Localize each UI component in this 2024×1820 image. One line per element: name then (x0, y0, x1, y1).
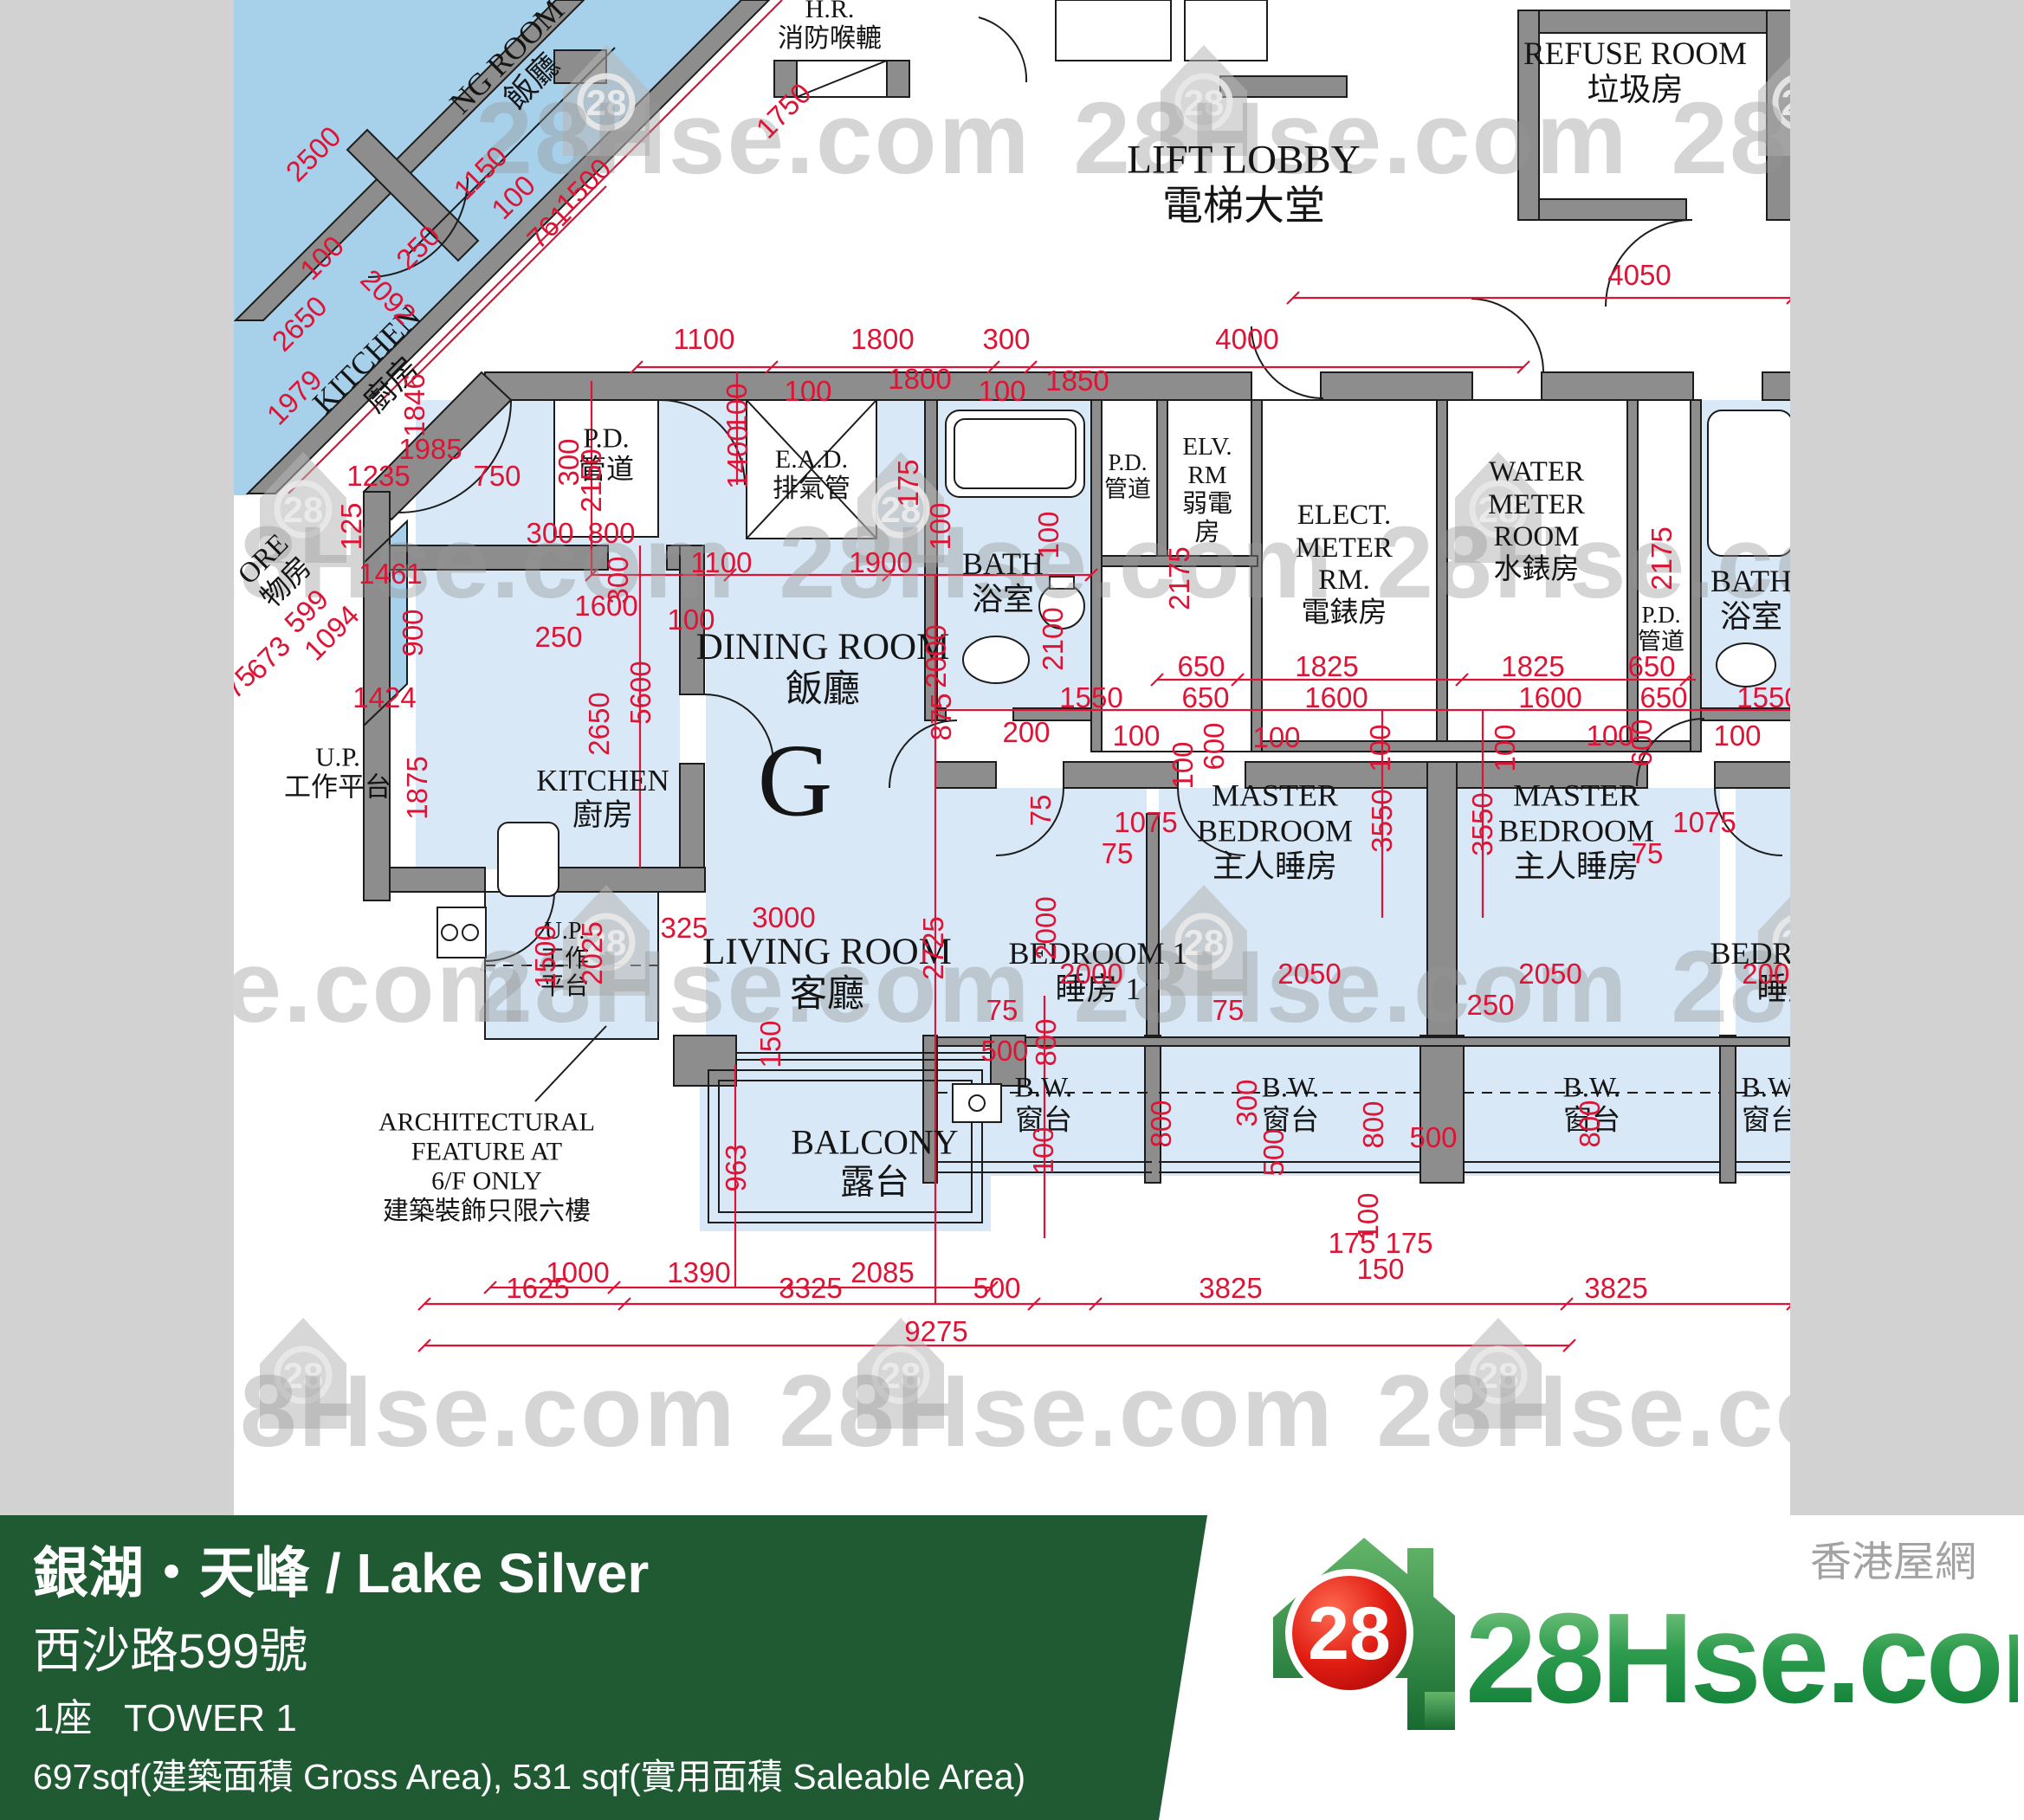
dim-800-95: 800 (1030, 1018, 1063, 1066)
dim-2000-80: 2000 (1030, 896, 1063, 959)
dim-2175-57: 2175 (1646, 526, 1678, 590)
dim-1600-70: 1600 (1518, 681, 1581, 714)
dim-100-42: 100 (924, 502, 957, 550)
right-gray-band (1790, 0, 2024, 1515)
dim-500-115: 500 (973, 1272, 1020, 1305)
dim-650-53: 650 (1177, 650, 1225, 683)
dim-1461-24: 1461 (359, 558, 422, 591)
room-master-1: MASTER BEDROOM 主人睡房 (1197, 778, 1353, 884)
dim-1825-54: 1825 (1295, 650, 1358, 683)
dim-1846-18: 1846 (398, 373, 431, 436)
dim-2085-100: 2085 (850, 1256, 914, 1289)
room-elect-meter: ELECT. METER RM. 電錶房 (1296, 500, 1393, 629)
dim-4000-4: 4000 (1215, 323, 1278, 356)
dim-100-97: 100 (1027, 1126, 1060, 1174)
estate-title: 銀湖・天峰 / Lake Silver (33, 1529, 649, 1609)
dim-100-68: 100 (1112, 720, 1160, 752)
dim-2025-102: 2025 (576, 921, 609, 984)
dim-2050-82: 2050 (1277, 958, 1341, 991)
room-living: LIVING ROOM 客廳 (702, 931, 952, 1016)
dim-250-13: 250 (390, 219, 447, 276)
dim-2175-52: 2175 (1163, 546, 1196, 610)
room-up-1: U.P. 工作平台 (284, 742, 391, 804)
room-balcony: BALCONY 露台 (791, 1122, 958, 1201)
dim-1100-1: 1100 (674, 323, 735, 356)
dim-500-104: 500 (1258, 1128, 1290, 1176)
dim-1900-37: 1900 (849, 546, 912, 579)
room-bw-2: B.W. 窗台 (1262, 1072, 1320, 1137)
room-water-meter: WATER METER ROOM 水錶房 (1488, 456, 1585, 586)
dim-800-33: 800 (587, 517, 635, 550)
dim-100-59: 100 (1167, 741, 1200, 789)
dim-900-29: 900 (397, 609, 430, 656)
dim-75-77: 75 (1102, 837, 1134, 870)
dim-2000-46: 2000 (920, 624, 953, 687)
area-info: 697sqf(建築面積 Gross Area), 531 sqf(實用面積 Sa… (33, 1747, 1025, 1799)
brand-logo: 28 28Hse.com 香港屋網 (1238, 1522, 2018, 1754)
dim-125-23: 125 (335, 502, 368, 550)
dim-2100-45: 2100 (1037, 607, 1070, 670)
dim-1075-89: 1075 (1672, 806, 1736, 839)
dim-75-90: 75 (1632, 837, 1664, 870)
dim-650-56: 650 (1627, 650, 1675, 683)
dim-1850-43: 1850 (1045, 365, 1109, 397)
room-bath-1: BATH 浴室 (962, 546, 1044, 617)
dim-150-112: 150 (1356, 1253, 1404, 1286)
dim-2500-8: 2500 (280, 120, 348, 189)
dim-100-61: 100 (1489, 724, 1522, 771)
room-hr: H.R. 消防喉轆 (778, 0, 882, 54)
room-pd-2: P.D. 管道 (1104, 449, 1151, 503)
dim-500-94: 500 (980, 1035, 1028, 1068)
room-elv: ELV. RM 弱電 房 (1182, 433, 1232, 547)
brand-site-text: 28Hse.com (1465, 1587, 2018, 1730)
dim-100-39: 100 (721, 383, 753, 430)
dim-1875-31: 1875 (401, 756, 434, 819)
dim-1600-66: 1600 (1304, 681, 1368, 714)
note-arch-feature: ARCHITECTURAL FEATURE AT 6/F ONLY 建築裝飾只限… (378, 1108, 595, 1227)
dim-100-73: 100 (1586, 720, 1633, 752)
dim-800-108: 800 (1574, 1100, 1607, 1147)
dim-100-6: 100 (978, 375, 1025, 408)
dim-1424-30: 1424 (352, 681, 416, 714)
dim-75-85: 75 (1212, 994, 1245, 1027)
dim-100-5: 100 (784, 375, 831, 408)
room-wing-dining: NG ROOM 飯廳 (443, 0, 597, 146)
dim-1825-55: 1825 (1501, 650, 1564, 683)
brand-cn-text: 香港屋網 (1810, 1539, 1976, 1585)
dim-100-74: 100 (1713, 720, 1761, 752)
dim-3000-91: 3000 (752, 901, 815, 934)
dim-100-44: 100 (1032, 511, 1065, 558)
logo-number: 28 (1308, 1592, 1391, 1675)
dim-963-96: 963 (720, 1144, 753, 1191)
dim-2000-81: 2000 (1059, 958, 1122, 991)
room-pd-3: P.D. 管道 (1638, 602, 1685, 655)
dim-2725-83: 2725 (917, 916, 950, 979)
dim-800-105: 800 (1145, 1100, 1178, 1147)
dim-9275-118: 9275 (904, 1315, 967, 1348)
dim-1800-40: 1800 (888, 363, 951, 396)
dim-750-21: 750 (473, 460, 521, 493)
dim-1625-113: 1625 (506, 1272, 569, 1305)
tower-label: 1座 TOWER 1 (33, 1687, 297, 1742)
dim-3325-114: 3325 (779, 1272, 842, 1305)
dim-2150-32: 2150 (575, 449, 608, 512)
dim-500-107: 500 (1409, 1121, 1457, 1154)
dim-650-65: 650 (1181, 681, 1229, 714)
plan-labels: H.R. 消防喉轆LIFT LOBBY 電梯大堂REFUSE ROOM 垃圾房P… (0, 0, 2024, 1515)
room-dining: DINING ROOM 飯廳 (696, 626, 950, 711)
dim-1550-64: 1550 (1059, 681, 1122, 714)
dim-325-92: 325 (660, 912, 708, 945)
dim-3550-78: 3550 (1366, 789, 1399, 852)
room-unit-g: G (758, 722, 833, 841)
dim-1400-38: 1400 (721, 425, 754, 488)
room-kitchen-g: KITCHEN 廚房 (536, 764, 669, 833)
dim-650-71: 650 (1639, 681, 1687, 714)
dim-1800-2: 1800 (850, 323, 914, 356)
floor-plan: 28 28Hse.com28Hse.com28Hse.com28Hse.com2… (0, 0, 2024, 1515)
dim-75-84: 75 (986, 994, 1018, 1027)
dim-3825-116: 3825 (1199, 1272, 1262, 1305)
dim-600-58: 600 (1198, 722, 1231, 770)
dim-250-49: 250 (534, 621, 582, 654)
room-refuse: REFUSE ROOM 垃圾房 (1523, 36, 1747, 109)
room-bath-2: BATH 浴室 (1710, 564, 1792, 635)
dim-2650-51: 2650 (583, 692, 616, 755)
footer: 銀湖・天峰 / Lake Silver 西沙路599號 1座 TOWER 1 6… (0, 1515, 2024, 1820)
dim-250-86: 250 (1466, 989, 1514, 1022)
dim-175-41: 175 (892, 459, 925, 507)
dim-875-63: 875 (925, 693, 958, 740)
dim-5600-47: 5600 (624, 661, 657, 724)
dim-100-69: 100 (1252, 721, 1300, 754)
dim-800-106: 800 (1357, 1100, 1390, 1148)
dim-75-75: 75 (1025, 795, 1057, 827)
dim-300-34: 300 (526, 517, 573, 550)
dim-200-67: 200 (1002, 716, 1050, 749)
dim-100-60: 100 (1364, 724, 1397, 771)
floorplan-page: 28 28Hse.com28Hse.com28Hse.com28Hse.com2… (0, 0, 2024, 1820)
estate-address: 西沙路599號 (33, 1612, 307, 1682)
dim-100-50: 100 (667, 603, 715, 636)
dim-1075-76: 1075 (1114, 806, 1177, 839)
dim-300-103: 300 (1231, 1079, 1264, 1126)
dim-150-93: 150 (754, 1020, 787, 1068)
dim-4050-7: 4050 (1607, 259, 1671, 292)
dim-2650-15: 2650 (266, 290, 334, 358)
dim-1100-36: 1100 (691, 546, 753, 579)
dim-3550-79: 3550 (1466, 792, 1499, 855)
room-lift-lobby: LIFT LOBBY 電梯大堂 (1127, 137, 1360, 229)
dim-2050-87: 2050 (1518, 958, 1581, 991)
dim-1600-48: 1600 (574, 590, 637, 623)
room-ead: E.A.D. 排氣管 (773, 445, 850, 504)
dim-300-3: 300 (982, 323, 1030, 356)
dim-3825-117: 3825 (1584, 1272, 1647, 1305)
dim-100-14: 100 (294, 229, 351, 287)
house-icon: 28 (1273, 1538, 1455, 1730)
left-gray-band (0, 0, 234, 1515)
dim-1750-0: 1750 (750, 77, 818, 145)
dim-1500-101: 1500 (529, 925, 562, 988)
dim-1390-99: 1390 (667, 1256, 730, 1289)
dim-1235-20: 1235 (346, 460, 410, 493)
